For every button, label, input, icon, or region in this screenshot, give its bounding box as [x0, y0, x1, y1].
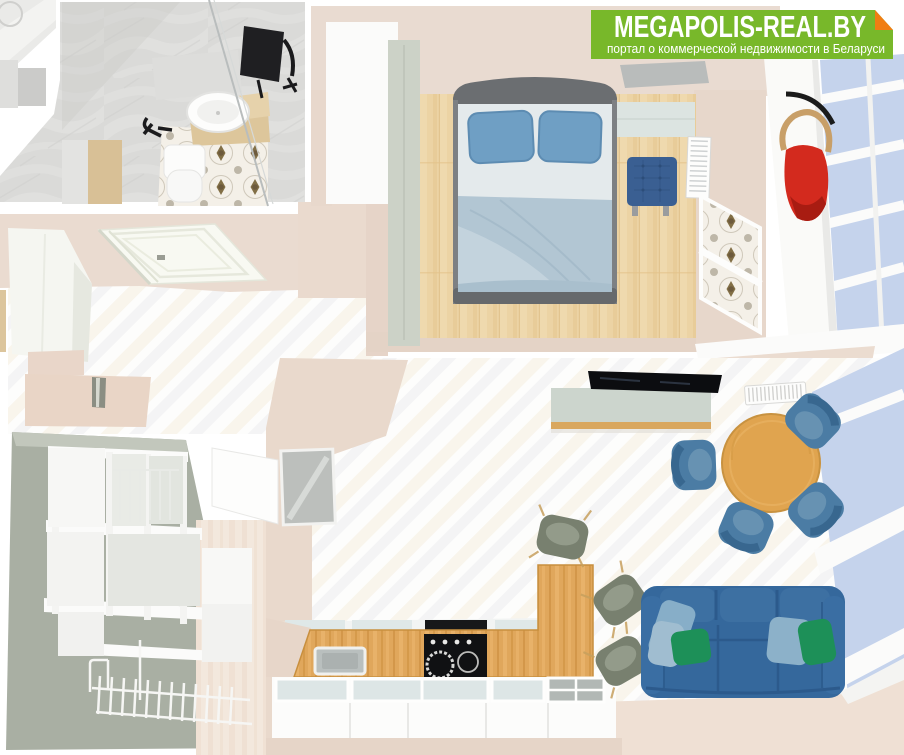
svg-text:MEGAPOLIS-REAL.BY: MEGAPOLIS-REAL.BY: [614, 9, 866, 44]
svg-text:портал о коммерческой недвижим: портал о коммерческой недвижимости в Бел…: [607, 41, 885, 56]
